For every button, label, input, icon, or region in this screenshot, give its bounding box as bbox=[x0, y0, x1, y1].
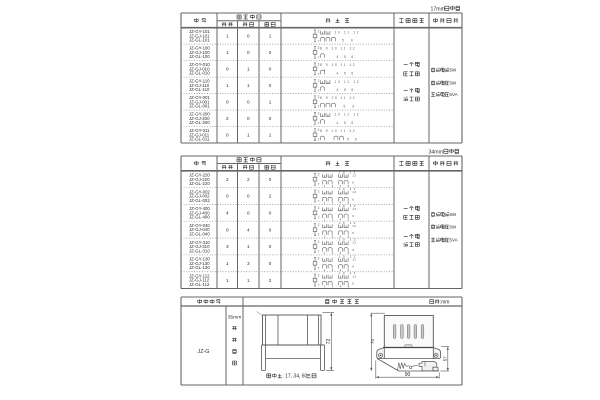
svg-text:1: 1 bbox=[269, 100, 272, 105]
svg-text:2: 2 bbox=[318, 273, 320, 277]
svg-text:0: 0 bbox=[226, 67, 229, 72]
svg-text:12: 12 bbox=[352, 257, 356, 261]
svg-text:3: 3 bbox=[226, 244, 229, 249]
svg-text:6: 6 bbox=[352, 197, 354, 201]
svg-text:0: 0 bbox=[269, 177, 272, 182]
svg-text:0: 0 bbox=[269, 244, 272, 249]
svg-text:0: 0 bbox=[269, 227, 272, 232]
svg-text:2: 2 bbox=[318, 79, 320, 83]
svg-text:0: 0 bbox=[226, 227, 229, 232]
svg-text:JZ-GL-130: JZ-GL-130 bbox=[189, 265, 210, 270]
svg-text:7: 7 bbox=[318, 39, 320, 43]
svg-text:2: 2 bbox=[269, 194, 272, 199]
svg-text:JZ-GL-101: JZ-GL-101 bbox=[189, 38, 210, 43]
svg-text:12: 12 bbox=[352, 274, 356, 278]
svg-text:2: 2 bbox=[318, 189, 320, 193]
svg-text:6: 6 bbox=[352, 248, 354, 252]
svg-text:0: 0 bbox=[226, 100, 229, 105]
svg-text:5W: 5W bbox=[449, 224, 457, 229]
svg-text:6: 6 bbox=[352, 231, 354, 235]
svg-text:JZ-GL-310: JZ-GL-310 bbox=[189, 248, 210, 253]
svg-text:7: 7 bbox=[318, 233, 320, 237]
svg-text:1: 1 bbox=[226, 278, 229, 283]
svg-text:34mm: 34mm bbox=[429, 150, 443, 156]
svg-text:JZ-GL-110: JZ-GL-110 bbox=[189, 87, 210, 92]
svg-text:0: 0 bbox=[269, 50, 272, 55]
svg-text:JZ-GL-002: JZ-GL-002 bbox=[189, 198, 210, 203]
svg-text:12: 12 bbox=[352, 190, 356, 194]
svg-text:4 5 6: 4 5 6 bbox=[337, 88, 356, 92]
svg-text:3: 3 bbox=[247, 261, 250, 266]
svg-text:JZ-GL-011: JZ-GL-011 bbox=[189, 137, 210, 142]
svg-text:6: 6 bbox=[352, 181, 354, 185]
svg-text:1: 1 bbox=[247, 67, 250, 72]
svg-text:2: 2 bbox=[318, 112, 320, 116]
svg-text:12: 12 bbox=[352, 224, 356, 228]
svg-text:4: 4 bbox=[247, 227, 250, 232]
svg-text:JZ-GL-220: JZ-GL-220 bbox=[189, 181, 210, 186]
svg-text:2: 2 bbox=[318, 257, 320, 261]
svg-text:10 11 12: 10 11 12 bbox=[335, 30, 361, 34]
svg-text:7: 7 bbox=[318, 56, 320, 60]
svg-text:7: 7 bbox=[318, 267, 320, 271]
svg-text:2: 2 bbox=[318, 173, 320, 177]
svg-text:5W: 5W bbox=[449, 81, 457, 86]
svg-text:1: 1 bbox=[269, 132, 272, 137]
svg-text:90: 90 bbox=[405, 372, 411, 378]
svg-text:1: 1 bbox=[226, 261, 229, 266]
svg-text:5VA: 5VA bbox=[449, 238, 458, 243]
svg-text:JZ-GL-010: JZ-GL-010 bbox=[189, 71, 210, 76]
svg-text:0: 0 bbox=[247, 194, 250, 199]
svg-text:1: 1 bbox=[247, 278, 250, 283]
svg-text:7: 7 bbox=[318, 216, 320, 220]
svg-text:0: 0 bbox=[247, 211, 250, 216]
svg-text:35mm: 35mm bbox=[228, 314, 242, 320]
svg-text:5 6: 5 6 bbox=[342, 39, 356, 43]
svg-text:6: 6 bbox=[352, 265, 354, 269]
svg-text:7: 7 bbox=[318, 283, 320, 287]
svg-text:1: 1 bbox=[226, 50, 229, 55]
svg-text:0: 0 bbox=[247, 50, 250, 55]
svg-text:7: 7 bbox=[318, 199, 320, 203]
svg-text:0: 0 bbox=[226, 132, 229, 137]
svg-text:JZ-G: JZ-G bbox=[198, 349, 210, 355]
svg-text:2: 2 bbox=[318, 223, 320, 227]
svg-text:8 9 10 11 12: 8 9 10 11 12 bbox=[320, 96, 356, 100]
svg-text:12: 12 bbox=[352, 241, 356, 245]
svg-text:12: 12 bbox=[352, 207, 356, 211]
svg-text:0: 0 bbox=[247, 116, 250, 121]
svg-text:70: 70 bbox=[370, 339, 375, 345]
svg-text:2: 2 bbox=[226, 177, 229, 182]
svg-text:0: 0 bbox=[269, 116, 272, 121]
svg-text:1 3: 1 3 bbox=[324, 268, 337, 272]
svg-text:1 3: 1 3 bbox=[324, 184, 337, 188]
svg-text:7: 7 bbox=[318, 72, 320, 76]
svg-text:1 3: 1 3 bbox=[324, 251, 337, 255]
svg-text:7: 7 bbox=[318, 89, 320, 93]
svg-text:72: 72 bbox=[326, 339, 332, 345]
svg-text:1: 1 bbox=[226, 83, 229, 88]
svg-text:6: 6 bbox=[352, 281, 354, 285]
svg-text:5 6: 5 6 bbox=[344, 105, 358, 109]
svg-text:5VA: 5VA bbox=[449, 92, 458, 97]
svg-text:0: 0 bbox=[226, 194, 229, 199]
svg-text:5W: 5W bbox=[449, 68, 457, 73]
svg-text:1 3: 1 3 bbox=[324, 201, 337, 205]
svg-text:4 5 6: 4 5 6 bbox=[337, 72, 356, 76]
svg-text:7: 7 bbox=[318, 183, 320, 187]
svg-text:2: 2 bbox=[318, 206, 320, 210]
svg-text:12: 12 bbox=[352, 173, 356, 177]
svg-text:5W: 5W bbox=[449, 212, 457, 217]
svg-text:57: 57 bbox=[443, 356, 448, 361]
svg-text:7: 7 bbox=[318, 105, 320, 109]
svg-text:0: 0 bbox=[247, 34, 250, 39]
svg-text::mm: :mm bbox=[440, 299, 450, 305]
svg-text:6: 6 bbox=[352, 214, 354, 218]
svg-text:JZ-GL-112: JZ-GL-112 bbox=[189, 282, 210, 287]
svg-text:1: 1 bbox=[247, 132, 250, 137]
svg-text:7: 7 bbox=[318, 122, 320, 126]
svg-text:2: 2 bbox=[226, 116, 229, 121]
svg-text:1 3: 1 3 bbox=[324, 234, 337, 238]
svg-text:5 6: 5 6 bbox=[347, 137, 359, 141]
svg-text:0: 0 bbox=[269, 261, 272, 266]
svg-text:0: 0 bbox=[269, 211, 272, 216]
svg-text:1: 1 bbox=[247, 244, 250, 249]
svg-text:1: 1 bbox=[247, 83, 250, 88]
svg-text:8 9 10 11 12: 8 9 10 11 12 bbox=[320, 63, 356, 67]
svg-text:1 3: 1 3 bbox=[324, 217, 337, 221]
svg-text:8 9 10 11 12: 8 9 10 11 12 bbox=[320, 129, 356, 133]
svg-text:1 3: 1 3 bbox=[324, 285, 337, 289]
svg-text:2: 2 bbox=[269, 278, 272, 283]
svg-text:2: 2 bbox=[247, 177, 250, 182]
svg-text:8 9 10 11 12: 8 9 10 11 12 bbox=[320, 46, 356, 50]
svg-text:7: 7 bbox=[318, 138, 320, 142]
svg-text:7: 7 bbox=[318, 250, 320, 254]
svg-text:JZ-GL-100: JZ-GL-100 bbox=[189, 54, 210, 59]
svg-text:JZ-GL-400: JZ-GL-400 bbox=[189, 215, 210, 220]
svg-text:1: 1 bbox=[269, 34, 272, 39]
svg-text:4 5 6: 4 5 6 bbox=[337, 55, 356, 59]
svg-text:17mm: 17mm bbox=[431, 7, 445, 13]
svg-text:2: 2 bbox=[318, 240, 320, 244]
svg-text:JZ-GL-001: JZ-GL-001 bbox=[189, 104, 210, 109]
svg-text:4 6: 4 6 bbox=[340, 285, 353, 289]
svg-text:0: 0 bbox=[269, 83, 272, 88]
svg-text:: 17, 34, 60: : 17, 34, 60 bbox=[282, 374, 307, 380]
svg-text:10 11 12: 10 11 12 bbox=[335, 80, 361, 84]
svg-text:JZ-GL-040: JZ-GL-040 bbox=[189, 231, 210, 236]
svg-text:0: 0 bbox=[269, 67, 272, 72]
svg-text:1: 1 bbox=[226, 34, 229, 39]
svg-text:JZ-GL-200: JZ-GL-200 bbox=[189, 120, 210, 125]
svg-text:0: 0 bbox=[247, 100, 250, 105]
svg-text:4: 4 bbox=[226, 211, 229, 216]
svg-text:2: 2 bbox=[318, 29, 320, 33]
svg-text:10 11 12: 10 11 12 bbox=[335, 113, 361, 117]
svg-text:4 5 6: 4 5 6 bbox=[337, 121, 356, 125]
